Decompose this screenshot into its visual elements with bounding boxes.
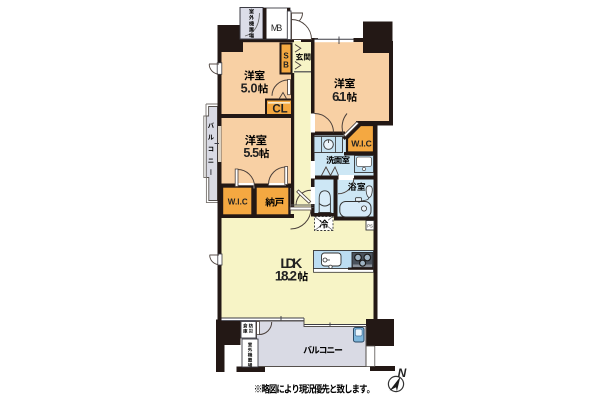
- svg-text:CL: CL: [272, 103, 287, 115]
- svg-text:W.I.C: W.I.C: [351, 139, 372, 149]
- svg-text:S: S: [283, 52, 289, 61]
- svg-text:W.I.C: W.I.C: [228, 198, 248, 207]
- svg-text:MB: MB: [271, 23, 282, 33]
- svg-text:6.1: 6.1: [332, 89, 346, 104]
- svg-text:B: B: [283, 61, 289, 70]
- svg-text:N: N: [398, 366, 407, 380]
- svg-text:PS: PS: [367, 224, 373, 229]
- svg-text:5.0: 5.0: [241, 81, 258, 95]
- svg-text:5.5: 5.5: [243, 146, 259, 160]
- svg-text:18.2: 18.2: [275, 268, 297, 283]
